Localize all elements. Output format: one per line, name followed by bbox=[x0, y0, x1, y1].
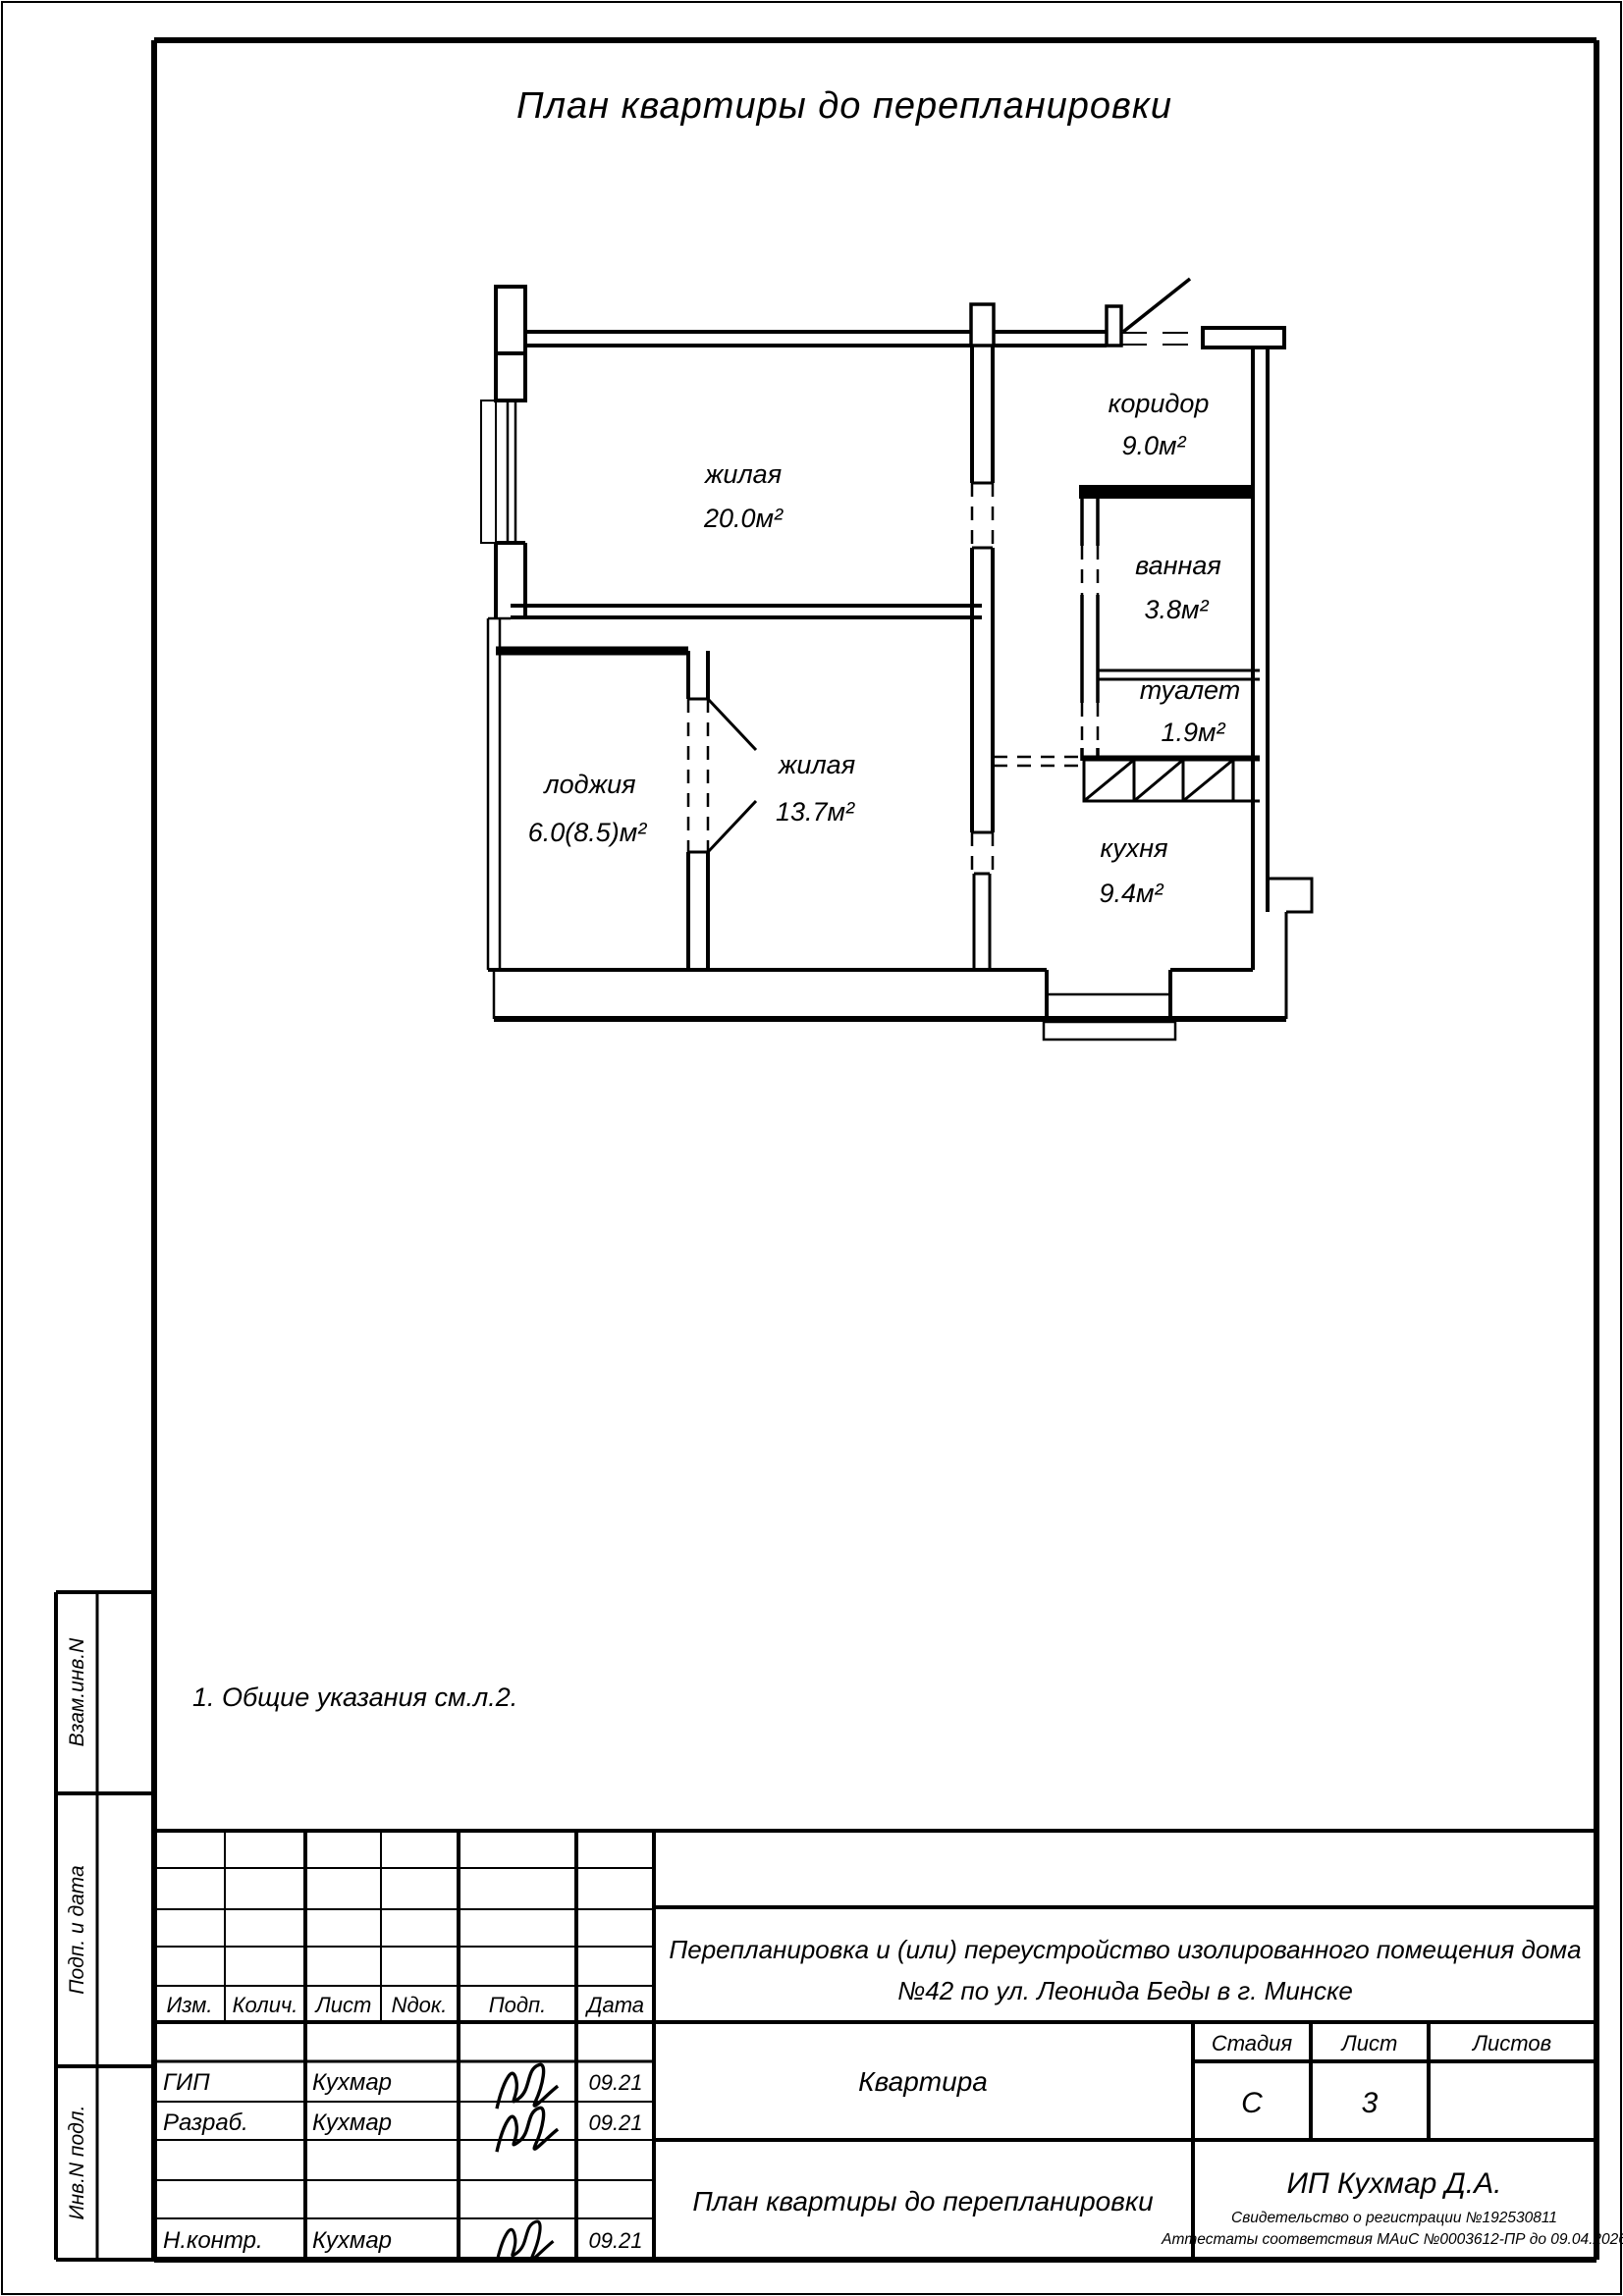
stamp-header-data: Дата bbox=[584, 1993, 644, 2017]
drawing-sheet: План квартиры до перепланировки bbox=[0, 0, 1623, 2296]
stamp-header-izm: Изм. bbox=[167, 1993, 213, 2017]
stamp-stage-value: С bbox=[1241, 2087, 1263, 2119]
room-label-loggia-area: 6.0(8.5)м² bbox=[528, 818, 648, 847]
stamp-stage-label: Стадия bbox=[1212, 2031, 1293, 2056]
stamp-cert-attestation: Аттестаты соответствия МАиС №0003612-ПР … bbox=[1161, 2231, 1623, 2248]
room-label-wc-area: 1.9м² bbox=[1161, 718, 1225, 747]
stamp-sheets-label: Листов bbox=[1471, 2031, 1551, 2056]
stamp-row-razrab-name: Кухмар bbox=[312, 2109, 392, 2136]
room-label-living2-name: жилая bbox=[778, 750, 855, 779]
room-label-bath-area: 3.8м² bbox=[1144, 595, 1209, 624]
room-label-loggia-name: лоджия bbox=[542, 770, 635, 799]
stamp-row-nkontr-name: Кухмар bbox=[312, 2227, 392, 2254]
room-label-living1-name: жилая bbox=[704, 459, 782, 489]
side-label-inv: Инв.N подл. bbox=[66, 2106, 88, 2220]
stamp-object: Квартира bbox=[858, 2066, 988, 2097]
room-label-corridor-area: 9.0м² bbox=[1121, 431, 1186, 460]
signature-nkontr bbox=[497, 2221, 554, 2262]
general-note: 1. Общие указания см.л.2. bbox=[192, 1682, 517, 1712]
sheet-canvas: План квартиры до перепланировки bbox=[0, 0, 1623, 2296]
side-label-podp: Подп. и дата bbox=[66, 1865, 88, 1994]
stamp-sheet-value: 3 bbox=[1362, 2087, 1379, 2119]
room-label-kitchen-name: кухня bbox=[1100, 833, 1167, 863]
project-description-line1: Перепланировка и (или) переустройство из… bbox=[669, 1935, 1581, 1964]
stamp-header-list: Лист bbox=[314, 1993, 372, 2017]
stamp-header-ndok: Nдок. bbox=[392, 1993, 448, 2017]
title-block-content: Изм. Колич. Лист Nдок. Подп. Дата ГИП Ку… bbox=[163, 1935, 1623, 2263]
stamp-row-gip-name: Кухмар bbox=[312, 2069, 392, 2096]
room-label-wc-name: туалет bbox=[1140, 675, 1241, 705]
stamp-header-podp: Подп. bbox=[489, 1993, 547, 2017]
room-label-kitchen-area: 9.4м² bbox=[1099, 879, 1163, 908]
signature-razrab bbox=[497, 2108, 558, 2152]
project-description-line2: №42 по ул. Леонида Беды в г. Минске bbox=[897, 1976, 1353, 2005]
room-label-bath-name: ванная bbox=[1135, 551, 1221, 580]
side-label-column: Взам.инв.N Подп. и дата Инв.N подл. bbox=[56, 1592, 154, 2260]
stamp-cert-registration: Свидетельство о регистрации №192530811 bbox=[1231, 2210, 1557, 2226]
side-label-vzam: Взам.инв.N bbox=[66, 1637, 88, 1746]
stamp-row-razrab-date: 09.21 bbox=[588, 2110, 642, 2135]
stamp-company: ИП Кухмар Д.А. bbox=[1287, 2167, 1502, 2200]
stamp-sheet-title: План квартиры до перепланировки bbox=[692, 2186, 1154, 2216]
stamp-row-nkontr-role: Н.контр. bbox=[163, 2227, 263, 2254]
floor-plan: жилая 20.0м² коридор 9.0м² ванная 3.8м² … bbox=[481, 279, 1312, 1040]
stamp-sheet-label: Лист bbox=[1340, 2031, 1398, 2056]
room-label-corridor-name: коридор bbox=[1109, 389, 1210, 418]
stamp-row-razrab-role: Разраб. bbox=[163, 2109, 248, 2136]
page-title: План квартиры до перепланировки bbox=[516, 85, 1172, 127]
room-label-living2-area: 13.7м² bbox=[776, 797, 855, 827]
stamp-header-kolich: Колич. bbox=[233, 1993, 298, 2017]
stamp-row-gip-role: ГИП bbox=[163, 2069, 210, 2096]
stamp-row-gip-date: 09.21 bbox=[588, 2070, 642, 2095]
stamp-row-nkontr-date: 09.21 bbox=[588, 2228, 642, 2253]
room-label-living1-area: 20.0м² bbox=[703, 504, 784, 533]
